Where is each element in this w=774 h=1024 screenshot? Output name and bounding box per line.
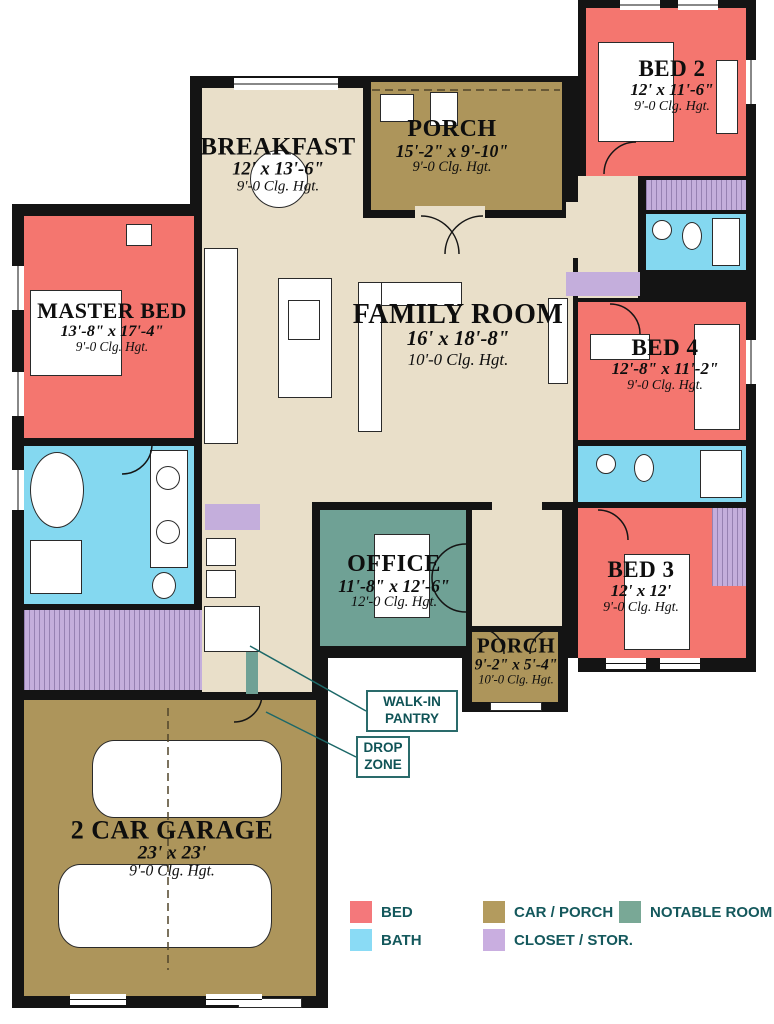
room-name: MASTER BED <box>37 300 187 323</box>
room-name: BED 3 <box>603 558 679 582</box>
room-ceiling: 9'-0 Clg. Hgt. <box>71 863 273 879</box>
room-dims: 12' x 12' <box>603 582 679 600</box>
legend-swatch-car-porch <box>483 901 505 923</box>
room-name: PORCH <box>475 635 558 657</box>
legend-swatch-bath <box>350 929 372 951</box>
leader-lines <box>250 646 366 757</box>
room-dims: 12' x 11'-6" <box>630 81 713 99</box>
room-label-garage: 2 CAR GARAGE 23' x 23' 9'-0 Clg. Hgt. <box>71 816 273 879</box>
room-ceiling: 12'-0 Clg. Hgt. <box>338 595 449 610</box>
room-name: PORCH <box>396 117 508 142</box>
legend-label: BED <box>381 904 413 921</box>
legend-swatch-bed <box>350 901 372 923</box>
room-ceiling: 10'-0 Clg. Hgt. <box>353 351 564 368</box>
room-dims: 15'-2" x 9'-10" <box>396 142 508 160</box>
room-name: BED 2 <box>630 57 713 81</box>
walk-in-pantry-callout: WALK-IN PANTRY <box>366 690 458 732</box>
door-arcs <box>122 142 640 722</box>
room-dims: 12'-8" x 11'-2" <box>612 360 719 378</box>
room-ceiling: 9'-0 Clg. Hgt. <box>200 180 355 196</box>
legend-label: CAR / PORCH <box>514 904 613 921</box>
room-ceiling: 9'-0 Clg. Hgt. <box>612 378 719 392</box>
legend-item-bath: BATH <box>350 929 422 951</box>
legend-item-notable-room: NOTABLE ROOM <box>619 901 772 923</box>
legend-item-bed: BED <box>350 901 413 923</box>
room-label-porch-top: PORCH 15'-2" x 9'-10" 9'-0 Clg. Hgt. <box>396 117 508 175</box>
callout-line: DROP <box>358 740 408 757</box>
room-dims: 9'-2" x 5'-4" <box>475 657 558 673</box>
room-dims: 23' x 23' <box>71 843 273 863</box>
room-label-master-bed: MASTER BED 13'-8" x 17'-4" 9'-0 Clg. Hgt… <box>37 300 187 354</box>
room-ceiling: 9'-0 Clg. Hgt. <box>396 160 508 175</box>
room-dims: 13'-8" x 17'-4" <box>37 323 187 340</box>
room-name: OFFICE <box>338 552 449 577</box>
room-name: FAMILY ROOM <box>353 300 564 329</box>
callout-line: WALK-IN <box>368 694 456 711</box>
room-label-family: FAMILY ROOM 16' x 18'-8" 10'-0 Clg. Hgt. <box>353 300 564 368</box>
room-ceiling: 9'-0 Clg. Hgt. <box>630 99 713 113</box>
drop-zone-callout: DROP ZONE <box>356 736 410 778</box>
room-dims: 16' x 18'-8" <box>353 329 564 351</box>
room-label-porch-bottom: PORCH 9'-2" x 5'-4" 10'-0 Clg. Hgt. <box>475 635 558 686</box>
room-name: 2 CAR GARAGE <box>71 816 273 843</box>
callout-line: PANTRY <box>368 711 456 728</box>
legend-item-car-porch: CAR / PORCH <box>483 901 613 923</box>
room-ceiling: 9'-0 Clg. Hgt. <box>37 340 187 354</box>
legend-swatch-closet-stor <box>483 929 505 951</box>
room-dims: 12' x 13'-6" <box>200 161 355 180</box>
room-ceiling: 9'-0 Clg. Hgt. <box>603 600 679 614</box>
legend-swatch-notable-room <box>619 901 641 923</box>
room-dims: 11'-8" x 12'-6" <box>338 577 449 595</box>
legend-label: NOTABLE ROOM <box>650 904 772 921</box>
room-label-breakfast: BREAKFAST 12' x 13'-6" 9'-0 Clg. Hgt. <box>200 135 355 196</box>
room-label-bed3: BED 3 12' x 12' 9'-0 Clg. Hgt. <box>603 558 679 614</box>
room-ceiling: 10'-0 Clg. Hgt. <box>475 673 558 686</box>
floor-plan: MASTER BED 13'-8" x 17'-4" 9'-0 Clg. Hgt… <box>0 0 774 1024</box>
room-label-bed2: BED 2 12' x 11'-6" 9'-0 Clg. Hgt. <box>630 57 713 113</box>
legend-item-closet-stor: CLOSET / STOR. <box>483 929 633 951</box>
room-name: BED 4 <box>612 336 719 360</box>
room-label-office: OFFICE 11'-8" x 12'-6" 12'-0 Clg. Hgt. <box>338 552 449 610</box>
legend-label: CLOSET / STOR. <box>514 932 633 949</box>
callout-line: ZONE <box>358 757 408 774</box>
room-label-bed4: BED 4 12'-8" x 11'-2" 9'-0 Clg. Hgt. <box>612 336 719 392</box>
room-name: BREAKFAST <box>200 135 355 161</box>
legend-label: BATH <box>381 932 422 949</box>
